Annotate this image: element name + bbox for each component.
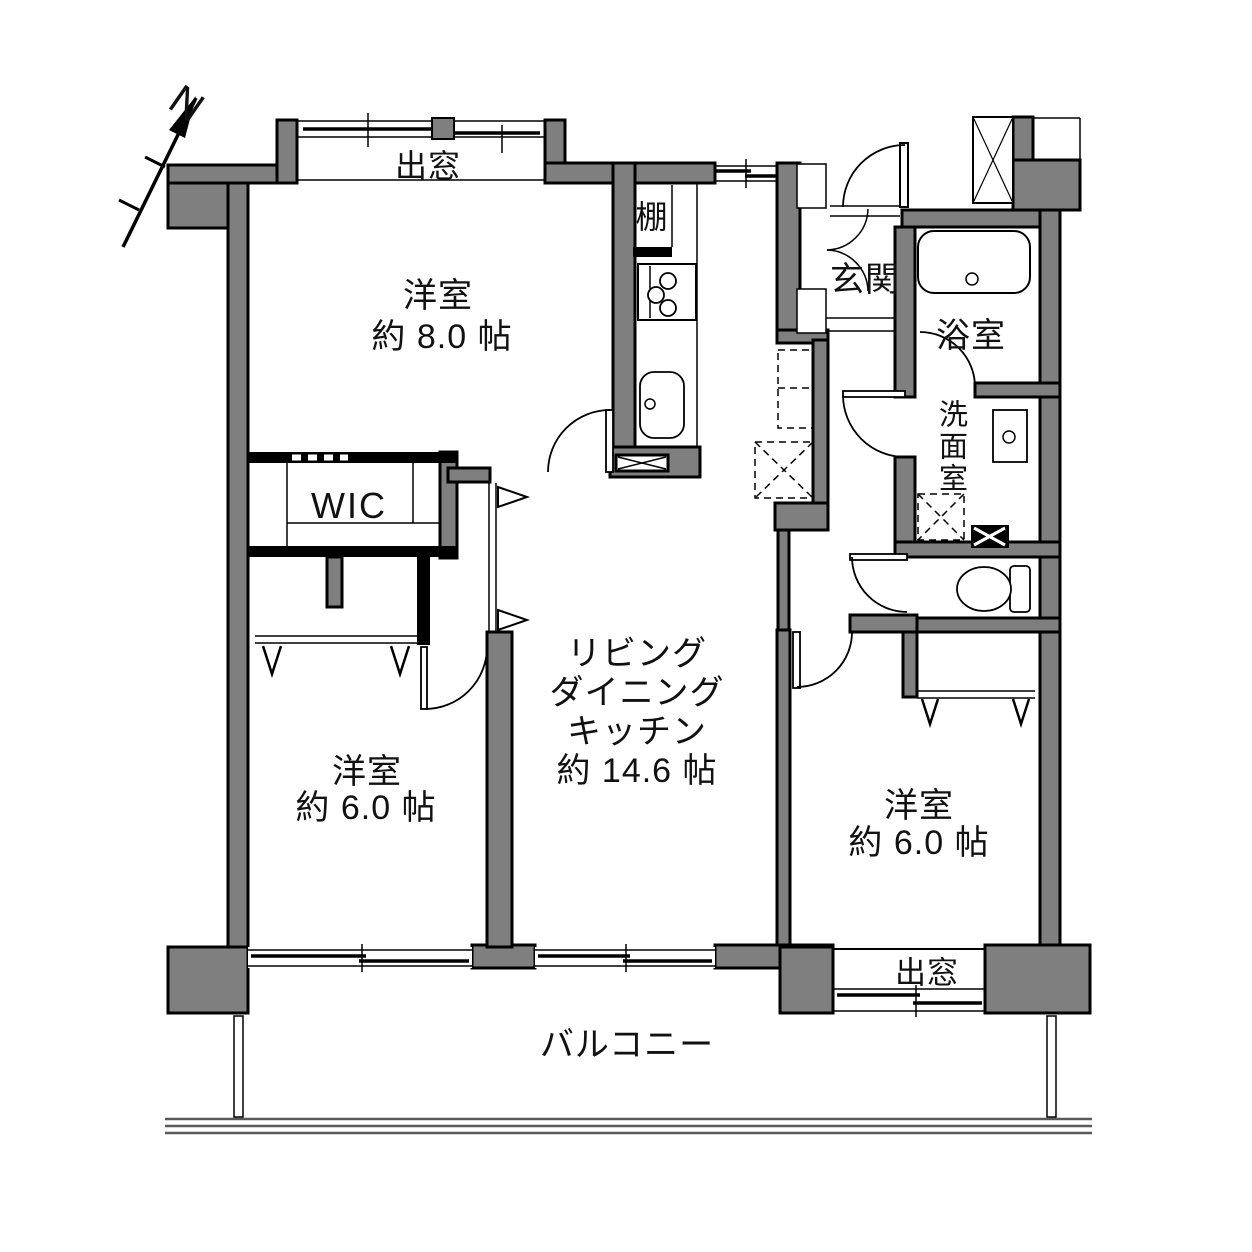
bedroom-se-size: 約 6.0 帖 xyxy=(848,826,989,860)
bedroom-sw-door xyxy=(421,647,487,709)
hallway-door xyxy=(548,410,613,472)
bedroom-sw-name: 洋室 xyxy=(332,755,402,789)
toilet xyxy=(957,566,1030,612)
window-north-center xyxy=(715,159,777,188)
shelf-label: 棚 xyxy=(635,201,668,233)
ldk-size: 約 14.6 帖 xyxy=(556,754,717,788)
balcony-label: バルコニー xyxy=(540,1028,714,1062)
window-south-bedroom-sw xyxy=(248,944,472,972)
kitchen-sink xyxy=(640,372,684,438)
ldk-label-line1: リビング xyxy=(567,637,707,671)
floor-plan: N 出窓 洋室 約 8.0 帖 棚 玄関 浴室 洗面室 WIC 洋室 約 6.0… xyxy=(0,0,1252,1252)
floor-plan-drawing xyxy=(0,0,1252,1252)
bedroom-se-door xyxy=(793,632,852,688)
entrance-cabinet xyxy=(797,164,868,333)
bathtub xyxy=(918,231,1030,293)
pipe-space xyxy=(973,117,1013,203)
bedroom-se-name: 洋室 xyxy=(884,789,954,823)
bedroom-sw-size: 約 6.0 帖 xyxy=(295,791,436,825)
entrance-label: 玄関 xyxy=(830,263,900,297)
ldk-label-line2: ダイニング xyxy=(550,676,725,710)
washroom-label: 洗面室 xyxy=(936,399,965,495)
bedroom-nw-size: 約 8.0 帖 xyxy=(371,320,512,354)
closet-sw-folding-doors xyxy=(255,636,420,674)
bathroom-label: 浴室 xyxy=(936,319,1006,353)
ldk-sliding-doors xyxy=(489,483,527,632)
vanity xyxy=(993,410,1027,462)
ldk-label-line3: キッチン xyxy=(567,715,707,749)
window-south-ldk xyxy=(535,944,715,972)
kitchen-vent xyxy=(616,455,668,471)
bay-window-south-label: 出窓 xyxy=(895,958,959,989)
wic-label: WIC xyxy=(311,488,387,524)
bedroom-nw-name: 洋室 xyxy=(403,279,473,313)
toilet-door xyxy=(850,554,907,612)
kitchen-stove xyxy=(638,264,696,320)
closet-se-folding-doors xyxy=(917,691,1035,724)
balcony-railing xyxy=(165,1119,1092,1133)
washroom-door xyxy=(843,391,905,457)
refrigerator-space xyxy=(755,350,813,498)
washing-machine-space xyxy=(918,494,964,540)
pipe-duct xyxy=(971,525,1009,548)
entry-door xyxy=(830,143,908,216)
bay-window-north-label: 出窓 xyxy=(395,150,461,182)
bay-window-north xyxy=(297,113,545,153)
